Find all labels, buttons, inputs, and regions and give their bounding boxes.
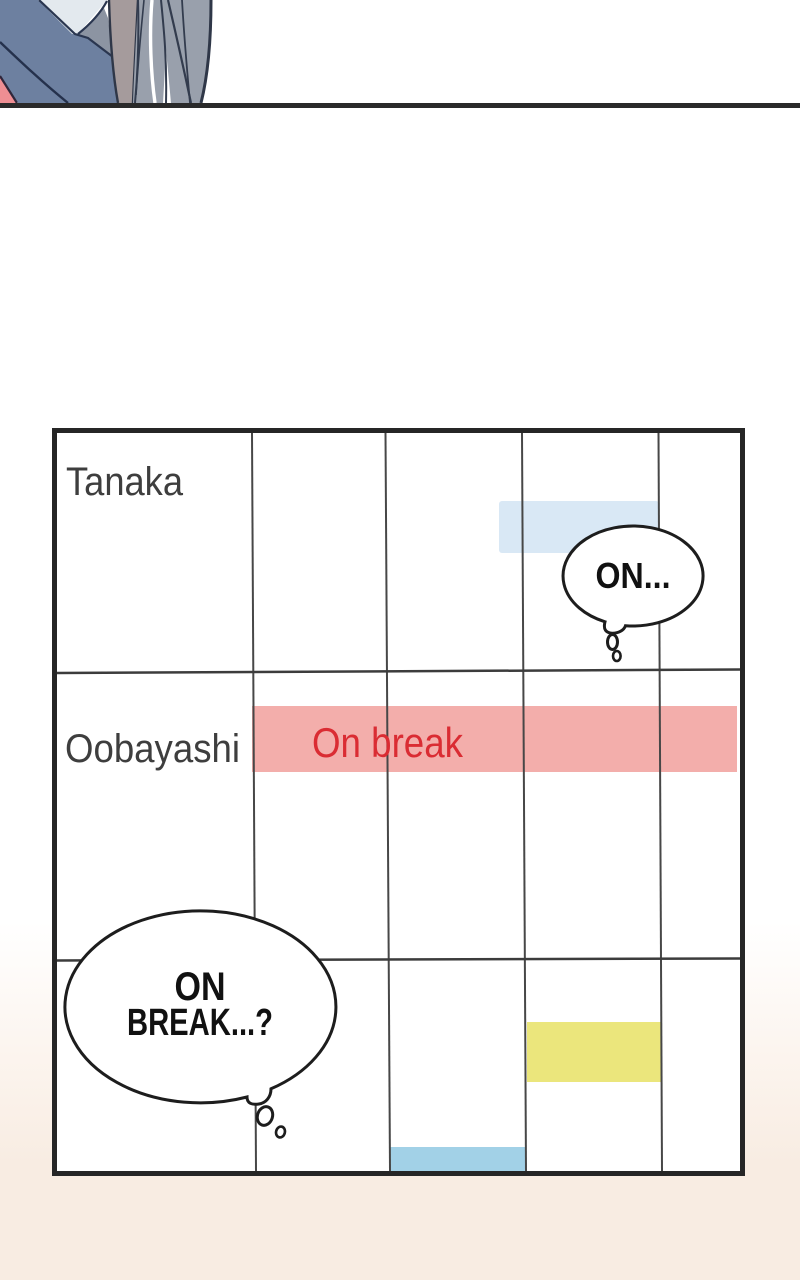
svg-text:On break: On break [312,719,464,766]
svg-text:Oobayashi: Oobayashi [65,727,240,771]
svg-text:ON...: ON... [596,555,671,596]
svg-text:Tanaka: Tanaka [66,460,184,504]
svg-text:BREAK...?: BREAK...? [127,1002,273,1044]
